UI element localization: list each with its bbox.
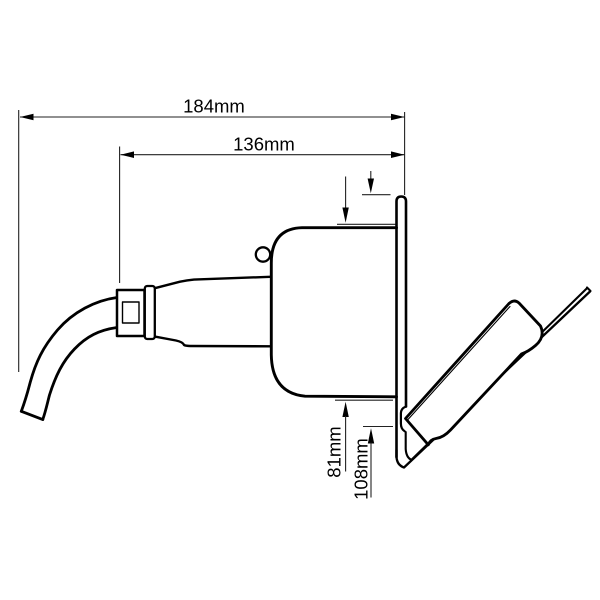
strip-end-cap [587, 288, 591, 292]
arrowhead-left-184 [20, 114, 34, 121]
arrowhead-right-136 [391, 151, 405, 158]
flip-cover-open [406, 301, 543, 445]
dimension-label-136mm: 136mm [233, 134, 295, 155]
hose-end-face [21, 411, 43, 419]
main-body [256, 228, 397, 397]
arrowhead-left-136 [121, 151, 135, 158]
body-top-tab [256, 247, 270, 261]
neck-bottom-edge [155, 337, 270, 347]
handle-connector-box [117, 290, 145, 336]
technical-drawing-page: 184mm 136mm 81mm 108mm [0, 0, 600, 600]
body-outline [271, 228, 396, 397]
arrowhead-up-81 [342, 402, 348, 417]
arrowhead-right-184 [391, 114, 405, 121]
technical-drawing: 184mm 136mm 81mm 108mm [0, 0, 600, 600]
cover-outline [406, 301, 543, 445]
neck-top-edge [155, 277, 270, 288]
hose-inner-edge [43, 328, 117, 420]
arrowhead-down-81 [342, 208, 348, 223]
dimension-label-184mm: 184mm [183, 96, 245, 117]
dimension-label-108mm: 108mm [351, 438, 372, 500]
hose [21, 298, 117, 420]
arrowhead-down-108 [368, 179, 374, 194]
nozzle-neck-assembly [117, 277, 270, 347]
collar-ring [145, 286, 155, 339]
dimension-label-81mm: 81mm [324, 426, 345, 477]
